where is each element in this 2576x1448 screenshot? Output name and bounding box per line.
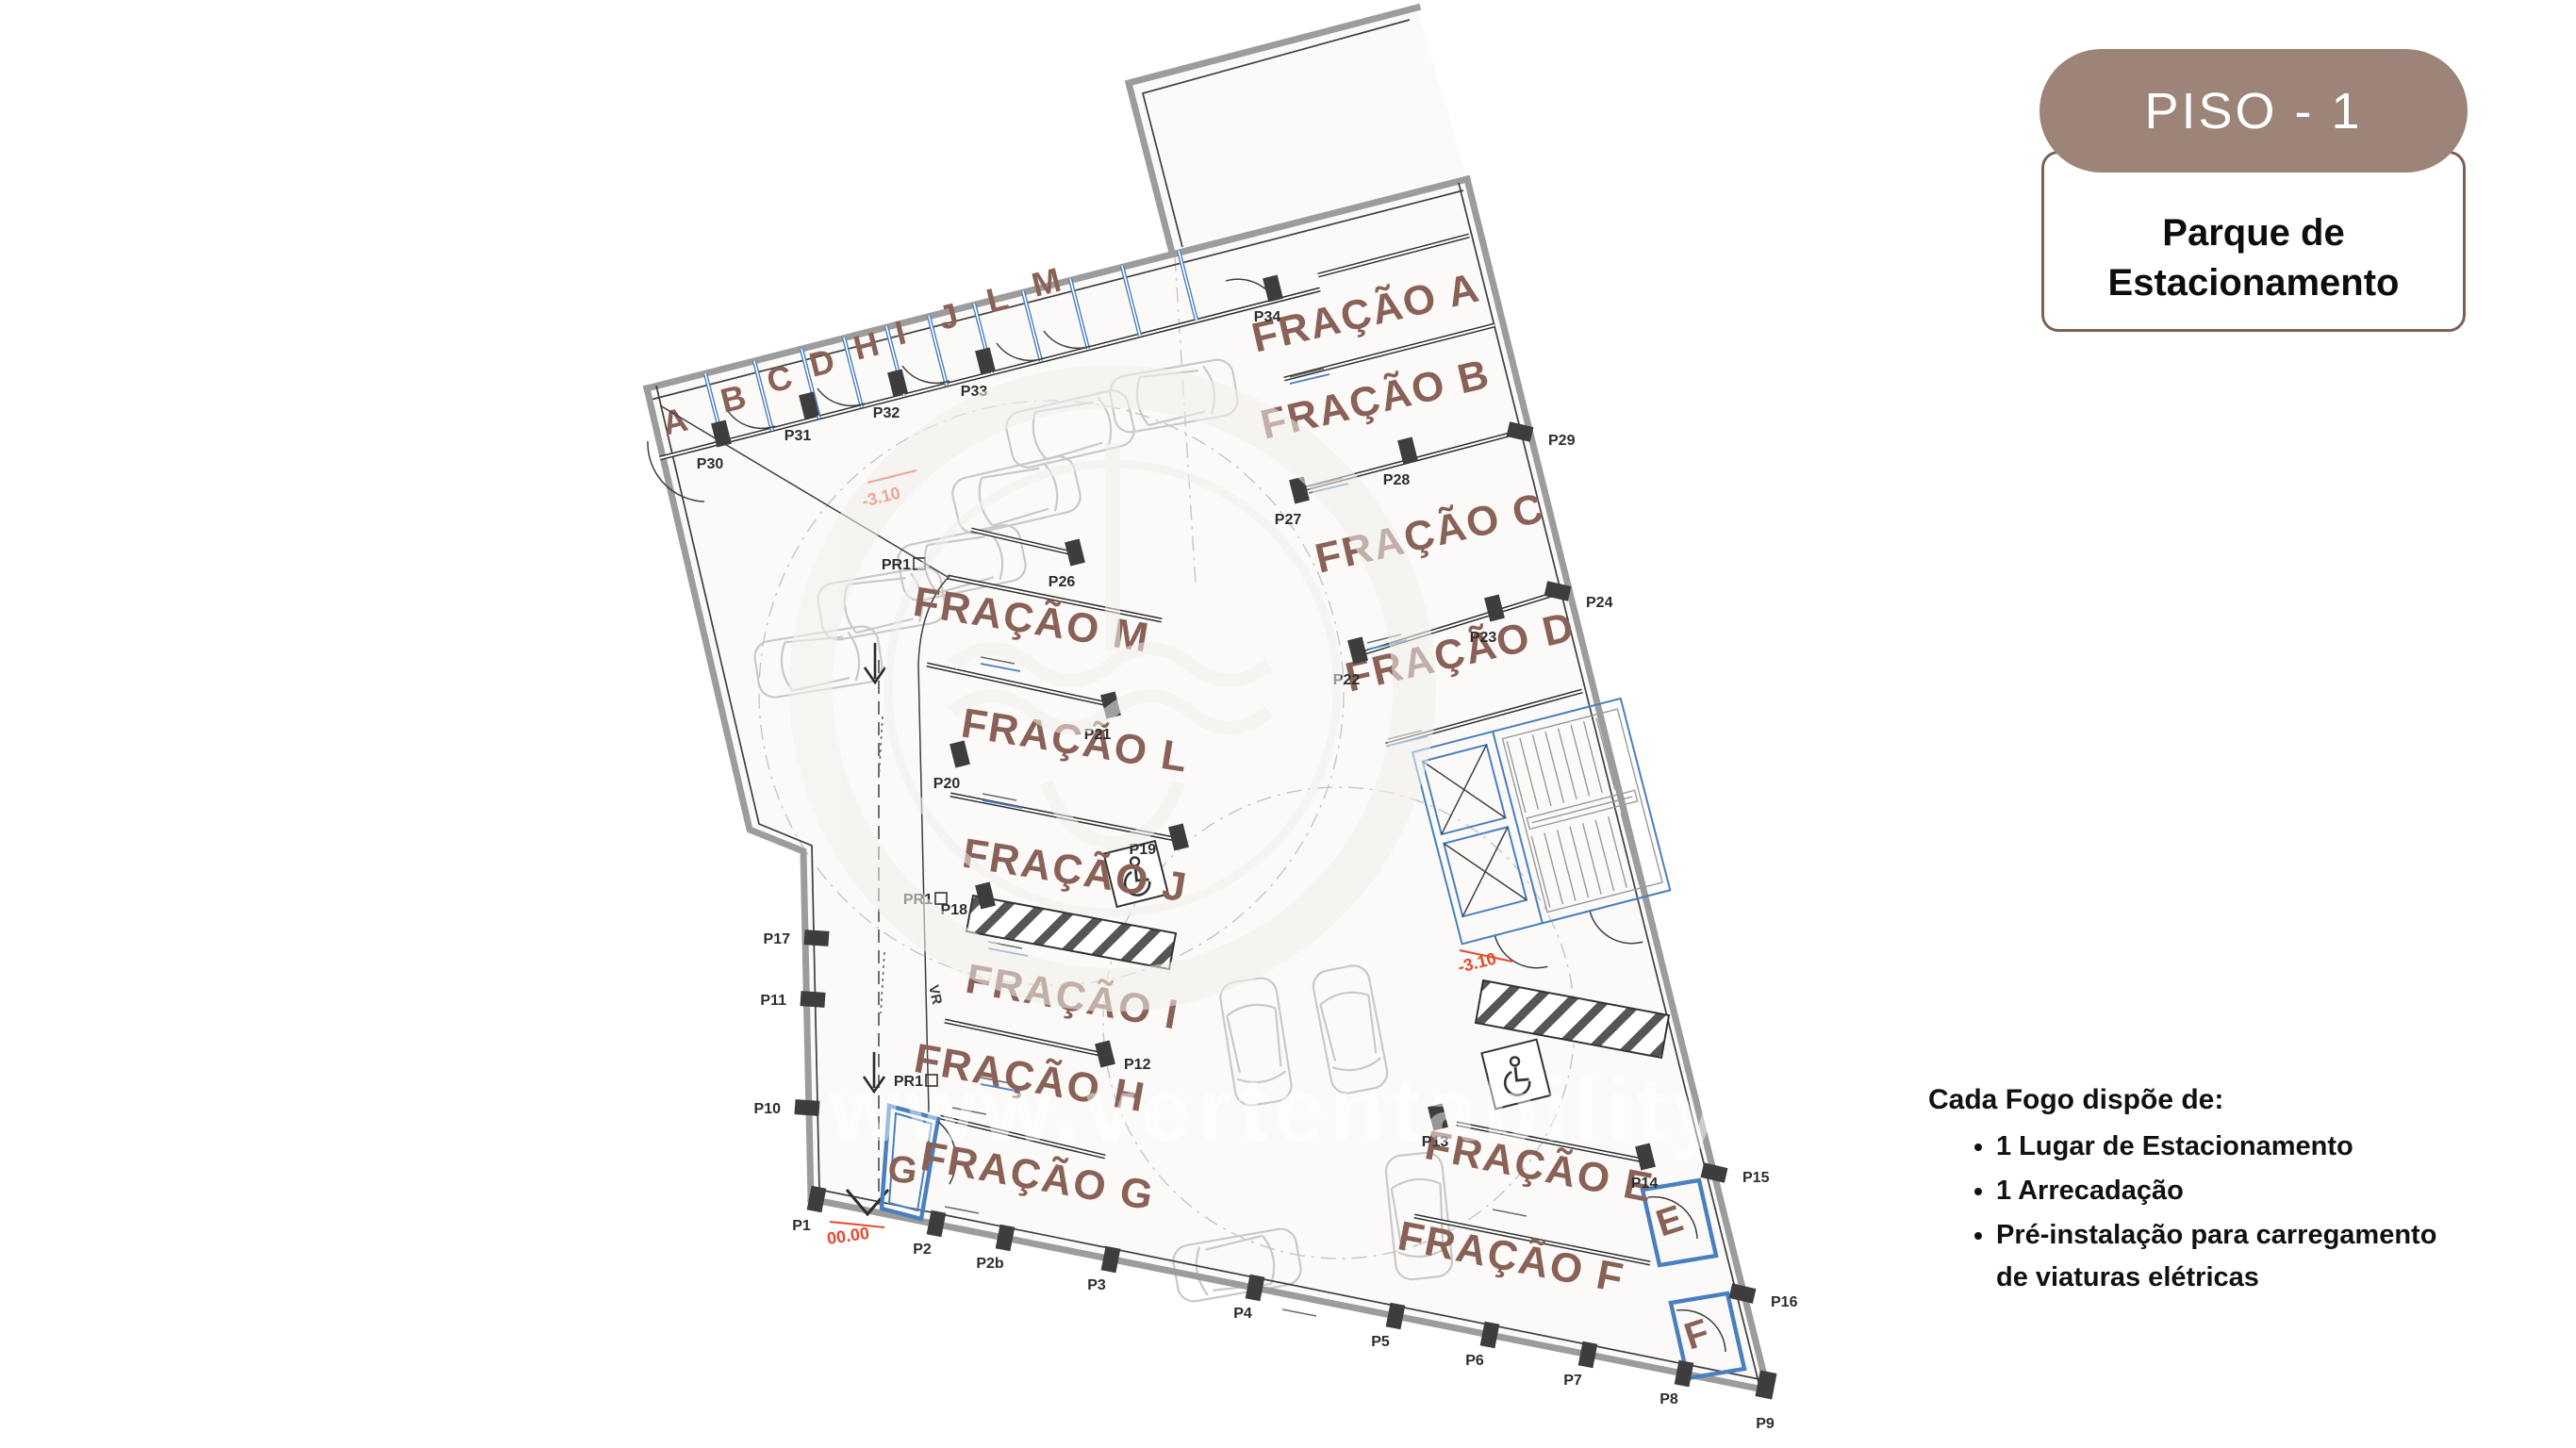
column-p29: P29 [1548, 433, 1576, 449]
column-p16: P16 [1771, 1294, 1798, 1310]
column-p26: P26 [1049, 574, 1076, 590]
features-block: Cada Fogo dispõe de: 1 Lugar de Estacion… [1928, 1084, 2494, 1301]
features-title: Cada Fogo dispõe de: [1928, 1084, 2494, 1116]
features-list: 1 Lugar de Estacionamento 1 Arrecadação … [1928, 1126, 2494, 1299]
column-p2b: P2b [976, 1256, 1004, 1272]
column-p31: P31 [784, 428, 812, 444]
column-p9: P9 [1756, 1416, 1775, 1432]
level-entry: 00.00 [826, 1224, 870, 1248]
title-card: Parque de Estacionamento [2041, 151, 2466, 332]
column-p1: P1 [792, 1218, 811, 1234]
column-p27: P27 [1275, 512, 1302, 528]
column-p30: P30 [697, 456, 724, 472]
column-pr1-a: PR1 [882, 557, 911, 573]
title-card-text: Parque de Estacionamento [2044, 208, 2463, 329]
column-p15: P15 [1742, 1170, 1770, 1186]
column-p34: P34 [1254, 309, 1281, 325]
column-p32: P32 [873, 405, 900, 421]
feature-item: 1 Arrecadação [1996, 1170, 2494, 1212]
column-p10: P10 [754, 1101, 782, 1117]
column-p6: P6 [1465, 1353, 1484, 1369]
column-p23: P23 [1470, 630, 1497, 646]
column-p4: P4 [1233, 1306, 1252, 1322]
feature-item: 1 Lugar de Estacionamento [1996, 1126, 2494, 1168]
column-p3: P3 [1087, 1277, 1106, 1293]
column-p2: P2 [913, 1242, 932, 1258]
column-p11: P11 [760, 993, 786, 1009]
floor-badge-label: PISO - 1 [2144, 82, 2362, 140]
column-p5: P5 [1371, 1334, 1390, 1350]
column-p17: P17 [764, 931, 791, 947]
floor-badge: PISO - 1 [2039, 49, 2468, 173]
column-p24: P24 [1586, 595, 1613, 611]
column-p8: P8 [1660, 1391, 1678, 1407]
column-p7: P7 [1563, 1373, 1582, 1389]
feature-item: Pré-instalação para carregamento de viat… [1996, 1214, 2439, 1299]
column-p14: P14 [1631, 1176, 1659, 1192]
column-p20: P20 [933, 776, 961, 792]
watermark-text: www.vertentability.pt [829, 1060, 1849, 1160]
slide: A B C D H I J L M VR [0, 0, 2576, 1448]
column-p28: P28 [1383, 472, 1411, 488]
